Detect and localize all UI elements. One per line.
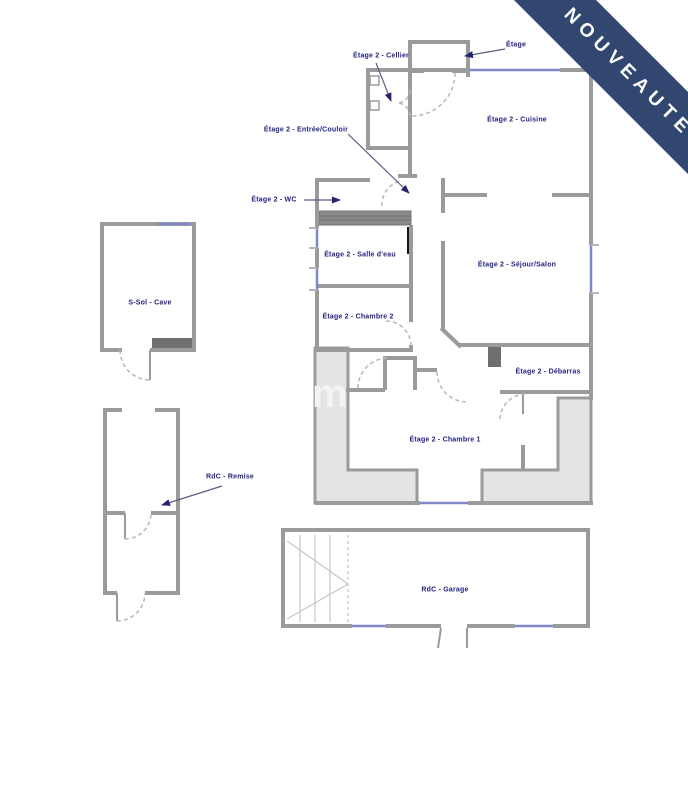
garage-stairs	[287, 535, 348, 622]
room-label-cave: S-Sol - Cave	[128, 300, 171, 307]
stair-blocks	[152, 211, 501, 367]
room-label-entree-couloir: Étage 2 - Entrée/Couloir	[264, 127, 348, 134]
room-label-cuisine: Étage 2 - Cuisine	[487, 117, 547, 124]
room-label-chambre1: Étage 2 - Chambre 1	[409, 437, 480, 444]
room-label-top-partial: Étage	[506, 42, 526, 49]
room-label-salle-deau: Étage 2 - Salle d'eau	[324, 252, 396, 259]
garage-walls	[281, 528, 590, 628]
cellier-steps	[370, 76, 379, 110]
room-label-debarras: Étage 2 - Débarras	[515, 369, 580, 376]
room-label-remise: RdC - Remise	[206, 474, 254, 481]
room-label-garage: RdC - Garage	[421, 587, 468, 594]
room-label-cellier: Étage 2 - Cellier	[353, 53, 409, 60]
remise-walls	[103, 408, 180, 595]
room-label-wc: Étage 2 - WC	[251, 197, 296, 204]
window-sills	[309, 228, 599, 293]
cave-walls	[100, 222, 194, 352]
room-label-chambre2: Étage 2 - Chambre 2	[322, 314, 393, 321]
etage2-walls	[315, 42, 593, 503]
room-label-sejour-salon: Étage 2 - Séjour/Salon	[478, 262, 556, 269]
floorplan-page: Étage 2 - Cellier Étage Étage 2 - Cuisin…	[0, 0, 688, 800]
floorplan-drawing	[0, 0, 688, 800]
